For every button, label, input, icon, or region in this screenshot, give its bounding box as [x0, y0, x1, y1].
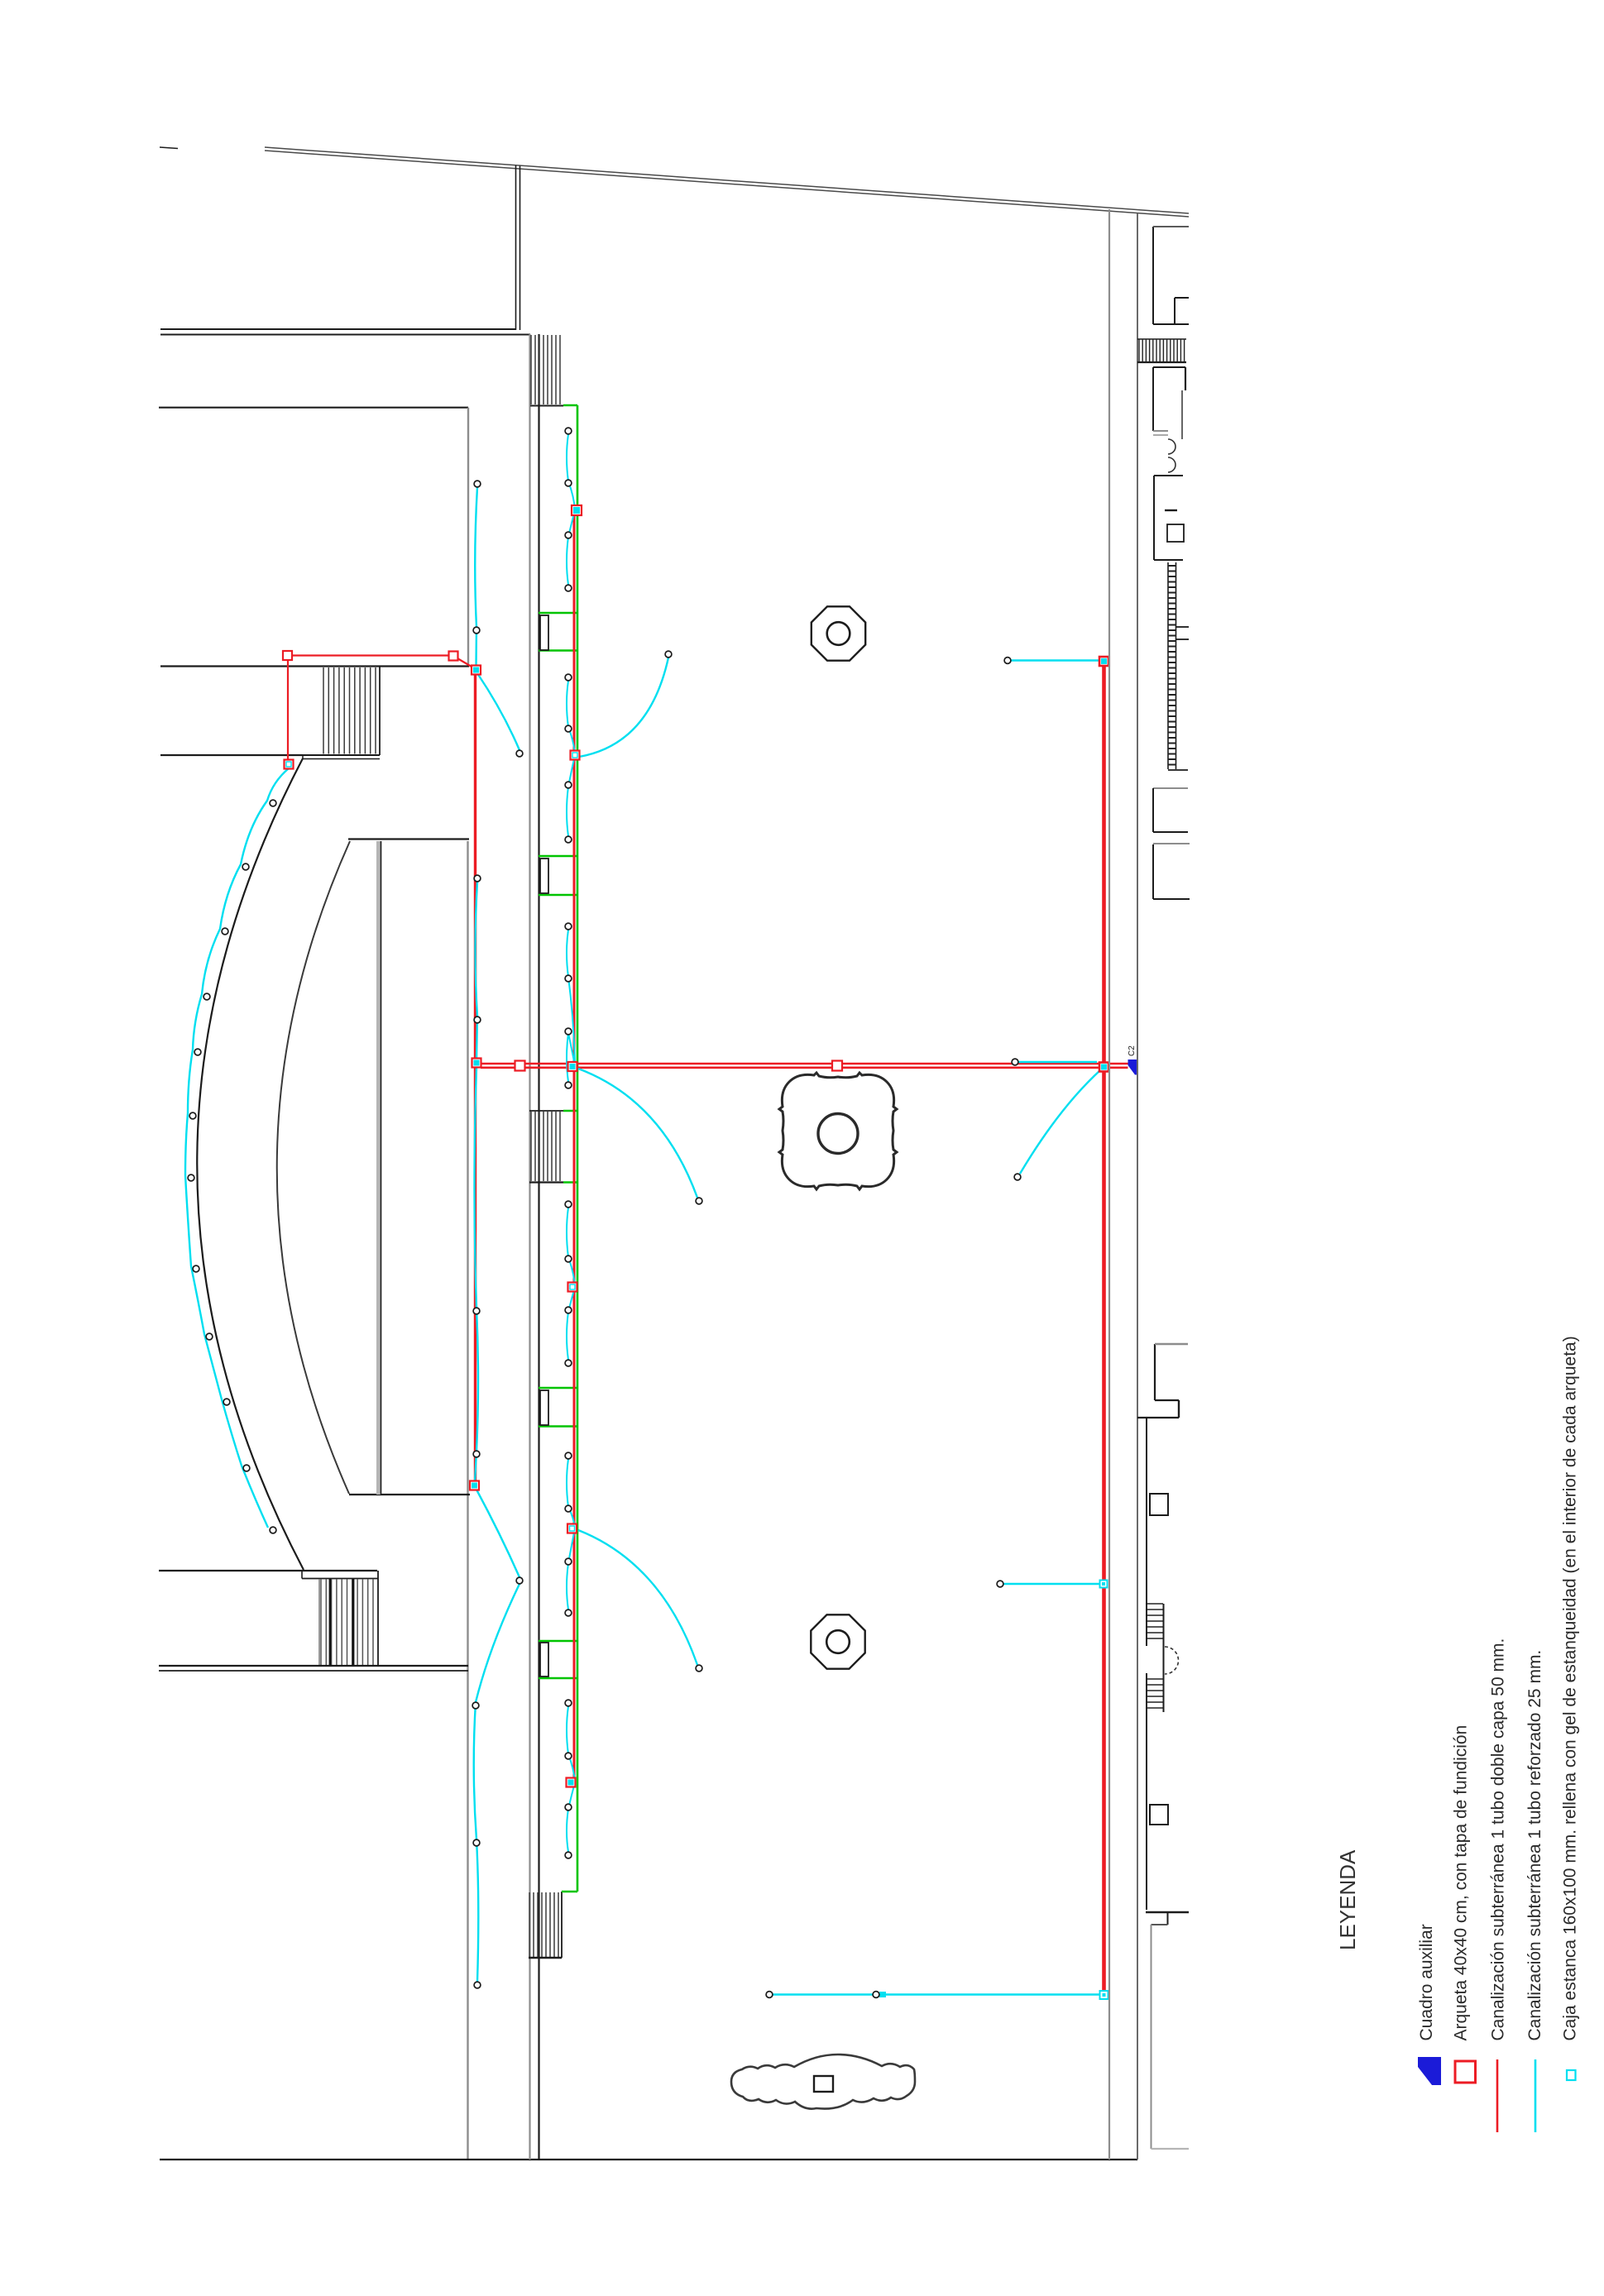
svg-text:Arqueta 40x40 cm, con tapa de: Arqueta 40x40 cm, con tapa de fundición: [1452, 1725, 1471, 2041]
svg-text:Cuadro auxiliar: Cuadro auxiliar: [1417, 1924, 1436, 2040]
svg-text:LEYENDA: LEYENDA: [1335, 1849, 1360, 1950]
svg-text:Canalización subterránea 1 tub: Canalización subterránea 1 tubo reforzad…: [1525, 1650, 1544, 2041]
svg-text:Caja estanca 160x100 mm. relle: Caja estanca 160x100 mm. rellena con gel…: [1561, 1336, 1580, 2040]
svg-text:Canalización subterránea 1 tub: Canalización subterránea 1 tubo doble ca…: [1489, 1638, 1508, 2041]
svg-text:C2: C2: [1128, 1045, 1137, 1056]
